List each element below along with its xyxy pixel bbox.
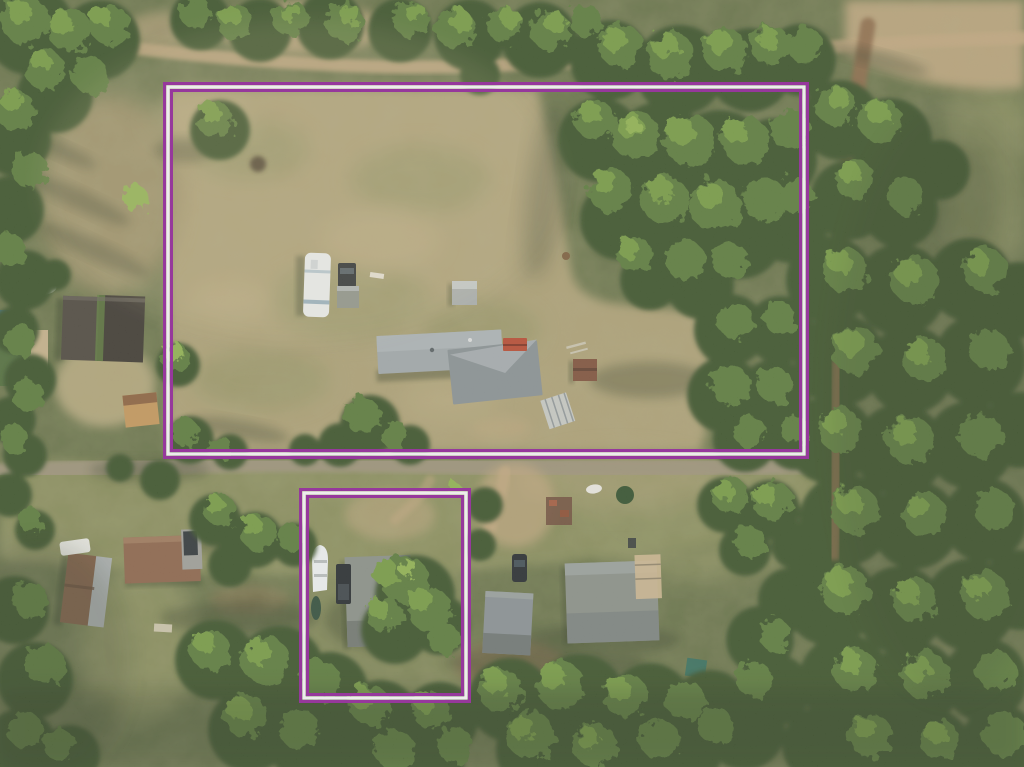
photo-grain <box>0 0 1024 767</box>
aerial-photo <box>0 0 1024 767</box>
